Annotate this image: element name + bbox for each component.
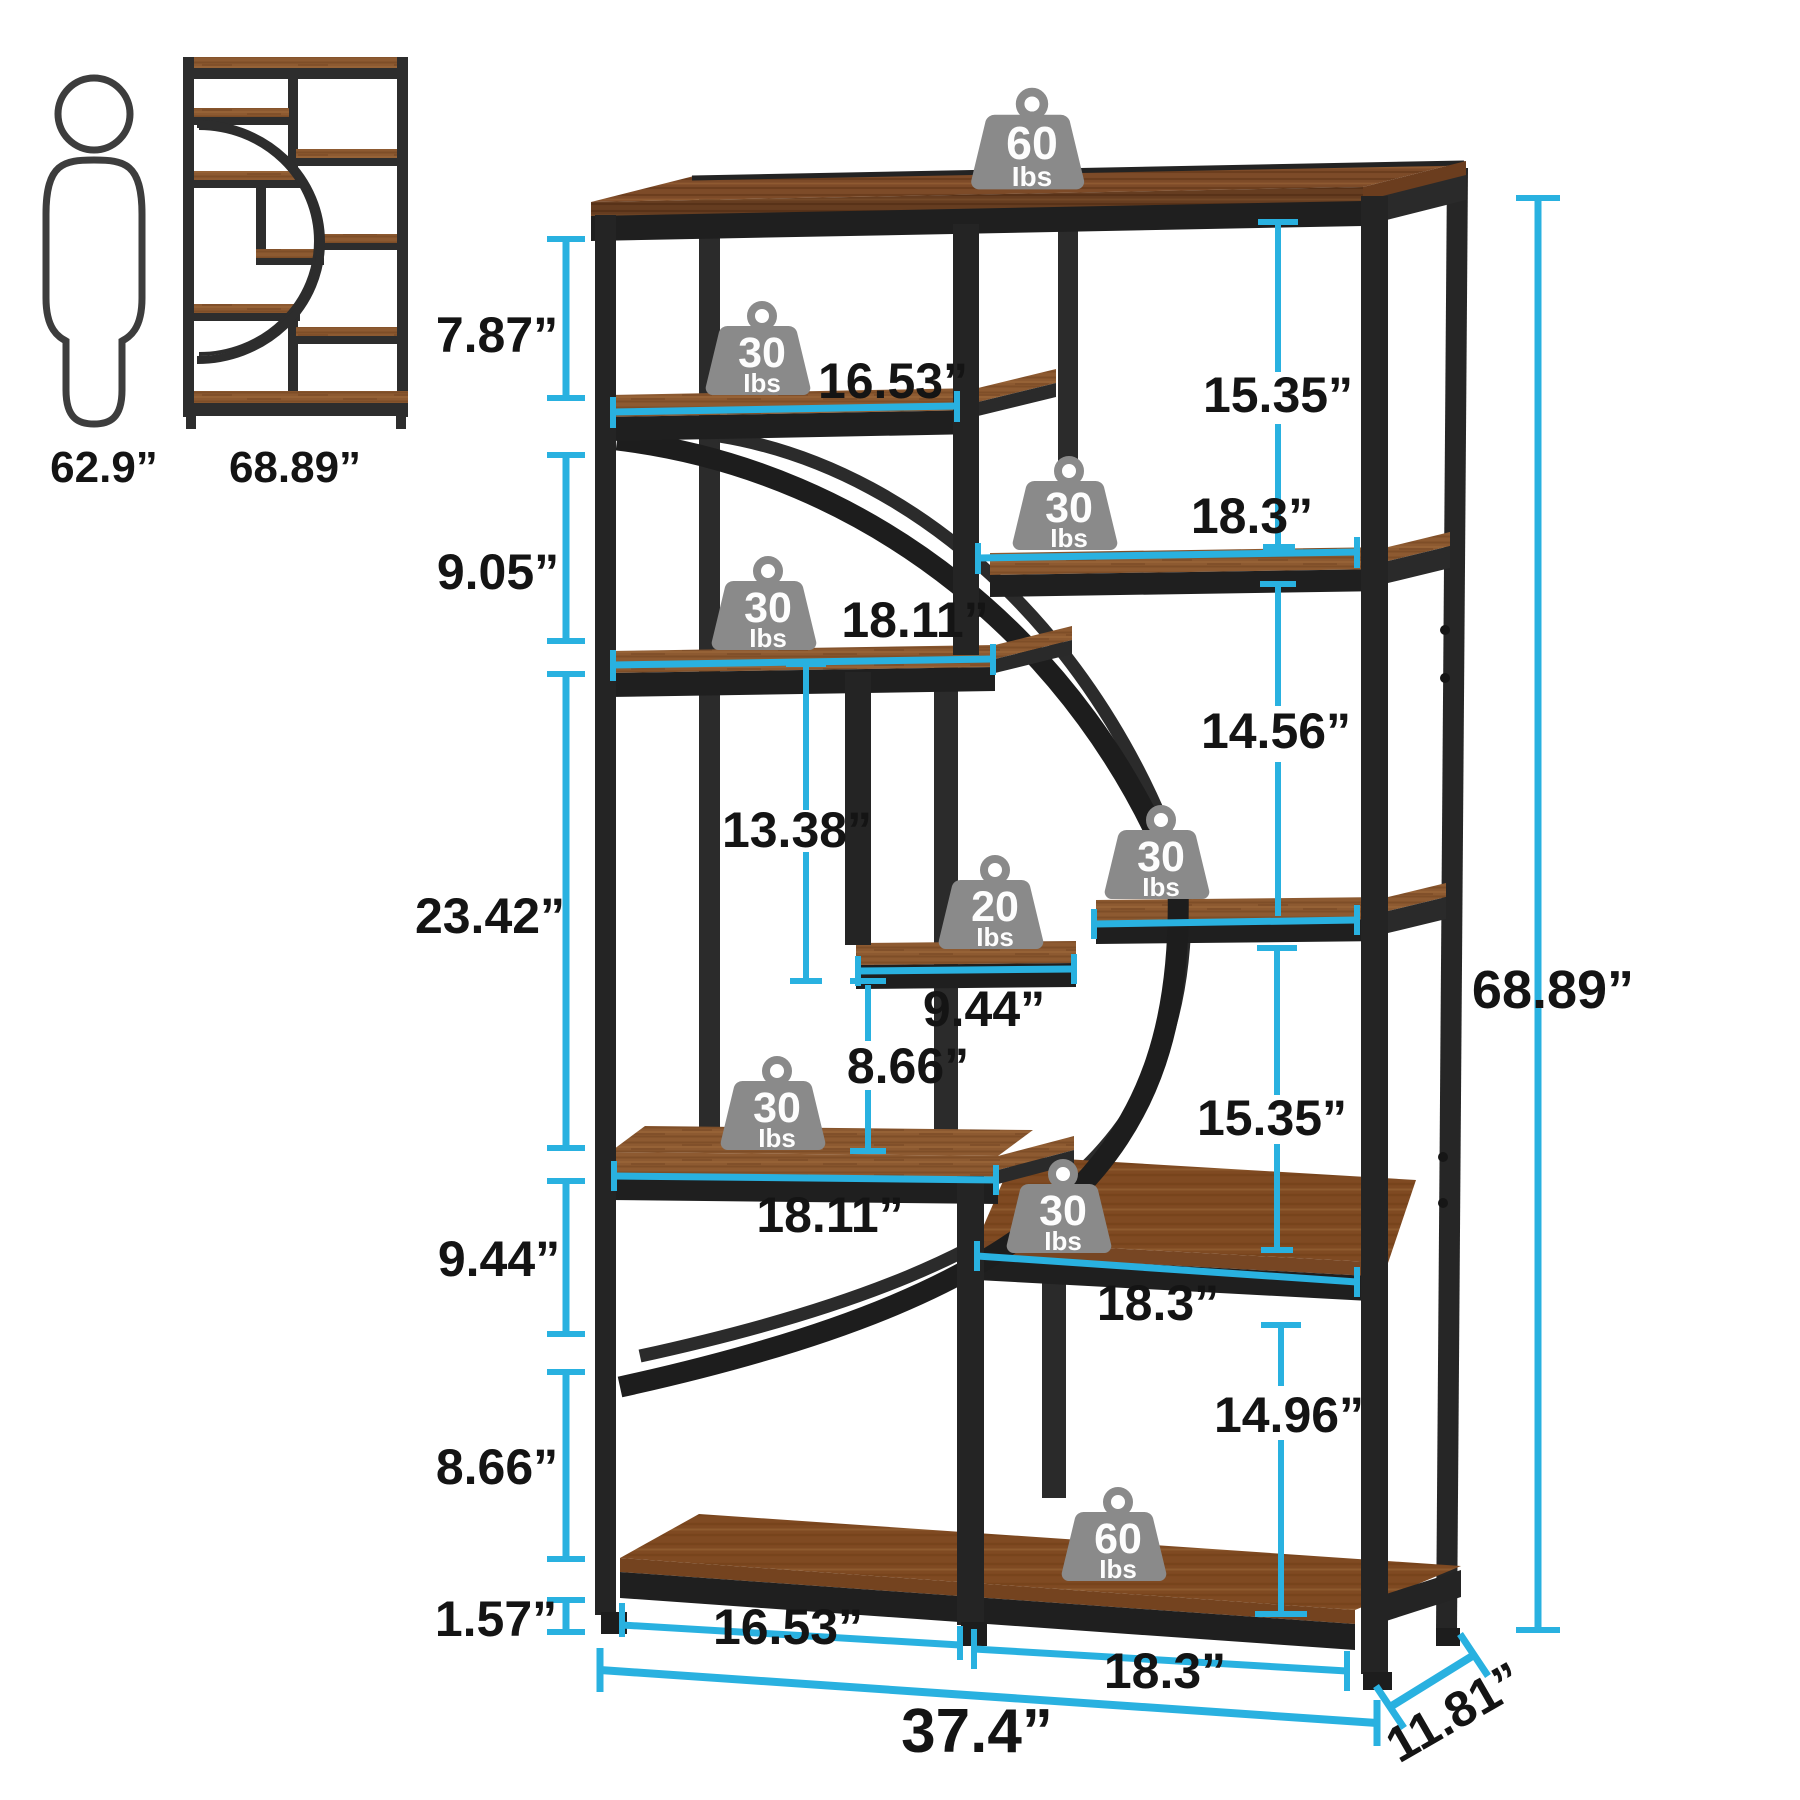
svg-text:Ibs: Ibs	[976, 922, 1014, 952]
svg-text:9.44”: 9.44”	[438, 1231, 560, 1287]
svg-text:68.89”: 68.89”	[1472, 960, 1634, 1020]
svg-text:1.57”: 1.57”	[435, 1591, 557, 1647]
svg-text:37.4”: 37.4”	[901, 1697, 1053, 1766]
svg-text:15.35”: 15.35”	[1197, 1090, 1347, 1146]
svg-text:7.87”: 7.87”	[436, 307, 558, 363]
svg-text:18.3”: 18.3”	[1097, 1275, 1219, 1331]
svg-text:Ibs: Ibs	[743, 368, 781, 398]
svg-text:Ibs: Ibs	[1142, 872, 1180, 902]
svg-text:13.38”: 13.38”	[722, 802, 872, 858]
svg-text:18.11”: 18.11”	[841, 592, 988, 648]
svg-text:9.44”: 9.44”	[923, 981, 1045, 1037]
svg-text:Ibs: Ibs	[1099, 1554, 1137, 1584]
svg-text:68.89”: 68.89”	[229, 443, 361, 492]
svg-text:Ibs: Ibs	[758, 1123, 796, 1153]
svg-text:18.3”: 18.3”	[1104, 1643, 1226, 1699]
svg-text:Ibs: Ibs	[1012, 161, 1053, 192]
svg-text:15.35”: 15.35”	[1203, 367, 1353, 423]
svg-text:23.42”: 23.42”	[415, 888, 565, 944]
svg-text:Ibs: Ibs	[1044, 1226, 1082, 1256]
svg-text:Ibs: Ibs	[1050, 523, 1088, 553]
svg-text:9.05”: 9.05”	[437, 544, 559, 600]
svg-text:16.53”: 16.53”	[713, 1599, 863, 1655]
svg-text:Ibs: Ibs	[749, 623, 787, 653]
svg-text:14.56”: 14.56”	[1201, 703, 1351, 759]
svg-text:62.9”: 62.9”	[50, 443, 158, 492]
svg-text:14.96”: 14.96”	[1214, 1387, 1364, 1443]
svg-text:8.66”: 8.66”	[436, 1439, 558, 1495]
svg-text:18.3”: 18.3”	[1191, 488, 1313, 544]
svg-text:8.66”: 8.66”	[847, 1038, 969, 1094]
svg-text:18.11”: 18.11”	[756, 1187, 903, 1243]
svg-text:16.53”: 16.53”	[818, 353, 968, 409]
